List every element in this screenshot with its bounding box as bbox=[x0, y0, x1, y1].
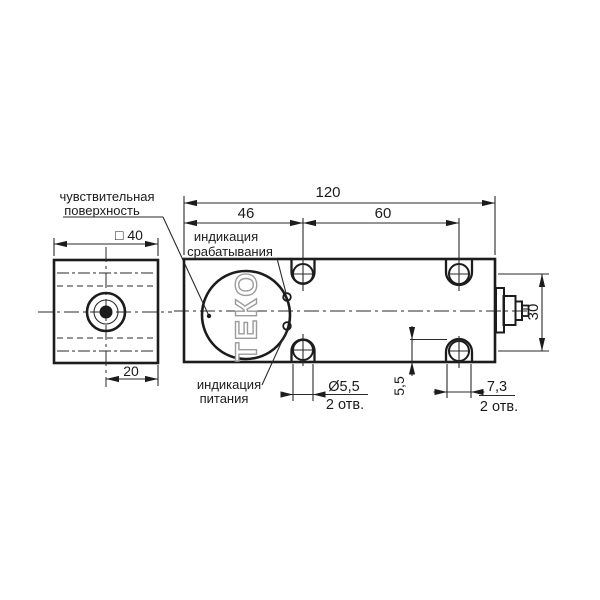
extension-line bbox=[447, 364, 471, 398]
arrowhead bbox=[106, 376, 119, 382]
arrowhead bbox=[409, 327, 415, 340]
label-power-line2: питания bbox=[200, 391, 249, 406]
brand-logo: ТЕКО bbox=[229, 271, 264, 362]
dim-height-30: 30 bbox=[525, 304, 542, 321]
right-dimension: 30 bbox=[498, 274, 549, 351]
extension-line bbox=[293, 364, 313, 401]
arrowhead bbox=[471, 389, 484, 395]
arrowhead bbox=[303, 220, 316, 226]
leader-line bbox=[262, 330, 287, 385]
arrowhead bbox=[145, 376, 158, 382]
arrowhead bbox=[435, 389, 448, 395]
arrowhead bbox=[539, 274, 545, 287]
arrowhead bbox=[184, 200, 197, 206]
arrowhead bbox=[145, 241, 158, 247]
label-sensitive-line1: чувствительная bbox=[59, 189, 154, 204]
extension-line bbox=[303, 218, 459, 291]
dim-square-40: □ 40 bbox=[115, 227, 143, 243]
sensor-dimension-drawing: □ 40 20 чувствительная поверхность bbox=[0, 0, 600, 600]
dim-slot-width: 7,3 bbox=[487, 379, 507, 395]
front-view: ТЕКО bbox=[174, 259, 530, 368]
label-power-line1: индикация bbox=[197, 377, 261, 392]
technical-drawing-canvas: □ 40 20 чувствительная поверхность bbox=[0, 0, 600, 600]
label-sensitive-line2: поверхность bbox=[64, 203, 140, 218]
dim-hole-dia-qty: 2 отв. bbox=[326, 397, 364, 413]
arrowhead bbox=[446, 220, 459, 226]
dim-length-120: 120 bbox=[315, 184, 340, 201]
label-output-line1: индикация bbox=[194, 229, 258, 244]
connector bbox=[496, 288, 529, 333]
arrowhead bbox=[281, 391, 294, 397]
arrowhead bbox=[539, 338, 545, 351]
dim-slot-qty: 2 отв. bbox=[480, 399, 518, 415]
dim-edge-5-5: 5,5 bbox=[391, 376, 407, 396]
label-output-line2: срабатывания bbox=[187, 244, 273, 259]
arrowhead bbox=[54, 241, 67, 247]
arrowhead bbox=[409, 362, 415, 375]
arrowhead bbox=[482, 200, 495, 206]
bottom-dimensions: 5,5 Ø5,5 2 отв. 7,3 2 отв. bbox=[281, 326, 519, 415]
dim-hole-span-60: 60 bbox=[375, 205, 392, 222]
dim-hole-dia: Ø5,5 bbox=[328, 379, 359, 395]
leader-dot bbox=[207, 314, 211, 318]
arrowhead bbox=[313, 391, 326, 397]
connector-pin bbox=[100, 306, 113, 319]
arrowhead bbox=[184, 220, 197, 226]
arrowhead bbox=[290, 220, 303, 226]
side-view: □ 40 20 bbox=[38, 227, 172, 387]
dim-hole-left-46: 46 bbox=[238, 205, 255, 222]
dim-offset-20: 20 bbox=[123, 363, 139, 379]
